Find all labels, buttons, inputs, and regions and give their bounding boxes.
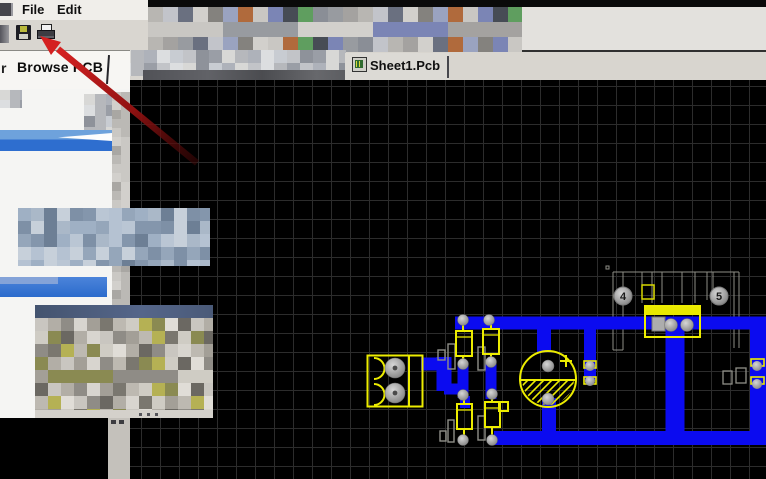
tab-partial[interactable]: r: [1, 60, 6, 76]
doc-tab-label: Sheet1.Pcb: [370, 58, 440, 73]
menu-file[interactable]: File: [22, 2, 44, 17]
censored-smudge: [143, 70, 360, 80]
partial-toolbar-icon: [0, 25, 9, 43]
cursor-artifact: [58, 133, 112, 141]
menu-edit[interactable]: Edit: [57, 2, 82, 17]
popup-title-bar: [35, 305, 213, 318]
censored-thumbnail: [18, 208, 210, 266]
pad-4: 4: [614, 287, 632, 305]
component-terminal-block: [368, 356, 423, 407]
pad-5-label: 5: [716, 291, 722, 303]
censored-panel-content: [0, 90, 22, 108]
component-capacitor: [500, 351, 584, 408]
pcb-artwork: 4 5: [130, 80, 766, 479]
pad-4-label: 4: [620, 291, 627, 303]
document-tab-bar: Sheet1.Pcb: [130, 52, 766, 80]
censored-toolbar-region: [148, 7, 522, 52]
print-button[interactable]: [36, 23, 56, 44]
window-system-icon: [0, 3, 13, 16]
popup-bottom-edge: [35, 410, 213, 418]
panel-tab-bar: r Browse PCB: [0, 50, 130, 89]
application-window: File Edit Sheet1.Pcb: [0, 0, 766, 479]
list-item-selected[interactable]: [0, 130, 112, 151]
tab-separator: [447, 56, 449, 78]
tab-browse-pcb[interactable]: Browse PCB: [17, 59, 103, 75]
censored-menubar-region: [148, 0, 766, 7]
floppy-disk-icon: [16, 25, 31, 40]
panel-scrollbar-lower[interactable]: [108, 418, 130, 479]
toolbar: [0, 20, 148, 52]
censored-popup-window: [35, 305, 213, 418]
pcb-canvas[interactable]: 4 5: [130, 80, 766, 479]
toolbar-empty-region: [522, 7, 766, 52]
printer-icon: [37, 24, 55, 40]
tab-sheet1-pcb[interactable]: Sheet1.Pcb: [345, 53, 449, 80]
list-item-selected[interactable]: [0, 277, 107, 297]
save-button[interactable]: [14, 23, 34, 44]
panel-tab-separator: [106, 55, 110, 84]
censored-popup-body: [35, 318, 213, 410]
pcb-file-icon: [352, 57, 367, 72]
pad-5: 5: [710, 287, 728, 305]
